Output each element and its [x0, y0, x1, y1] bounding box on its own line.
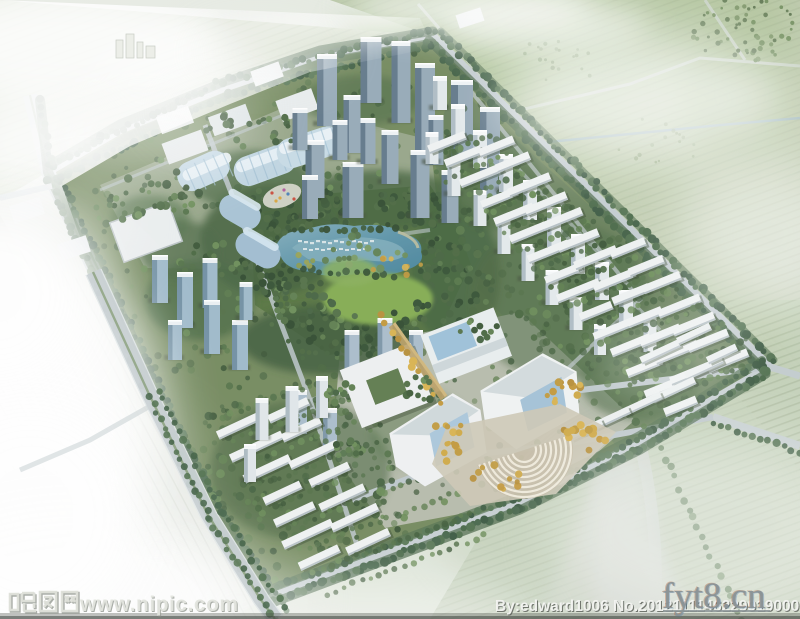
svg-text:www.nipic.com: www.nipic.com	[79, 593, 239, 616]
